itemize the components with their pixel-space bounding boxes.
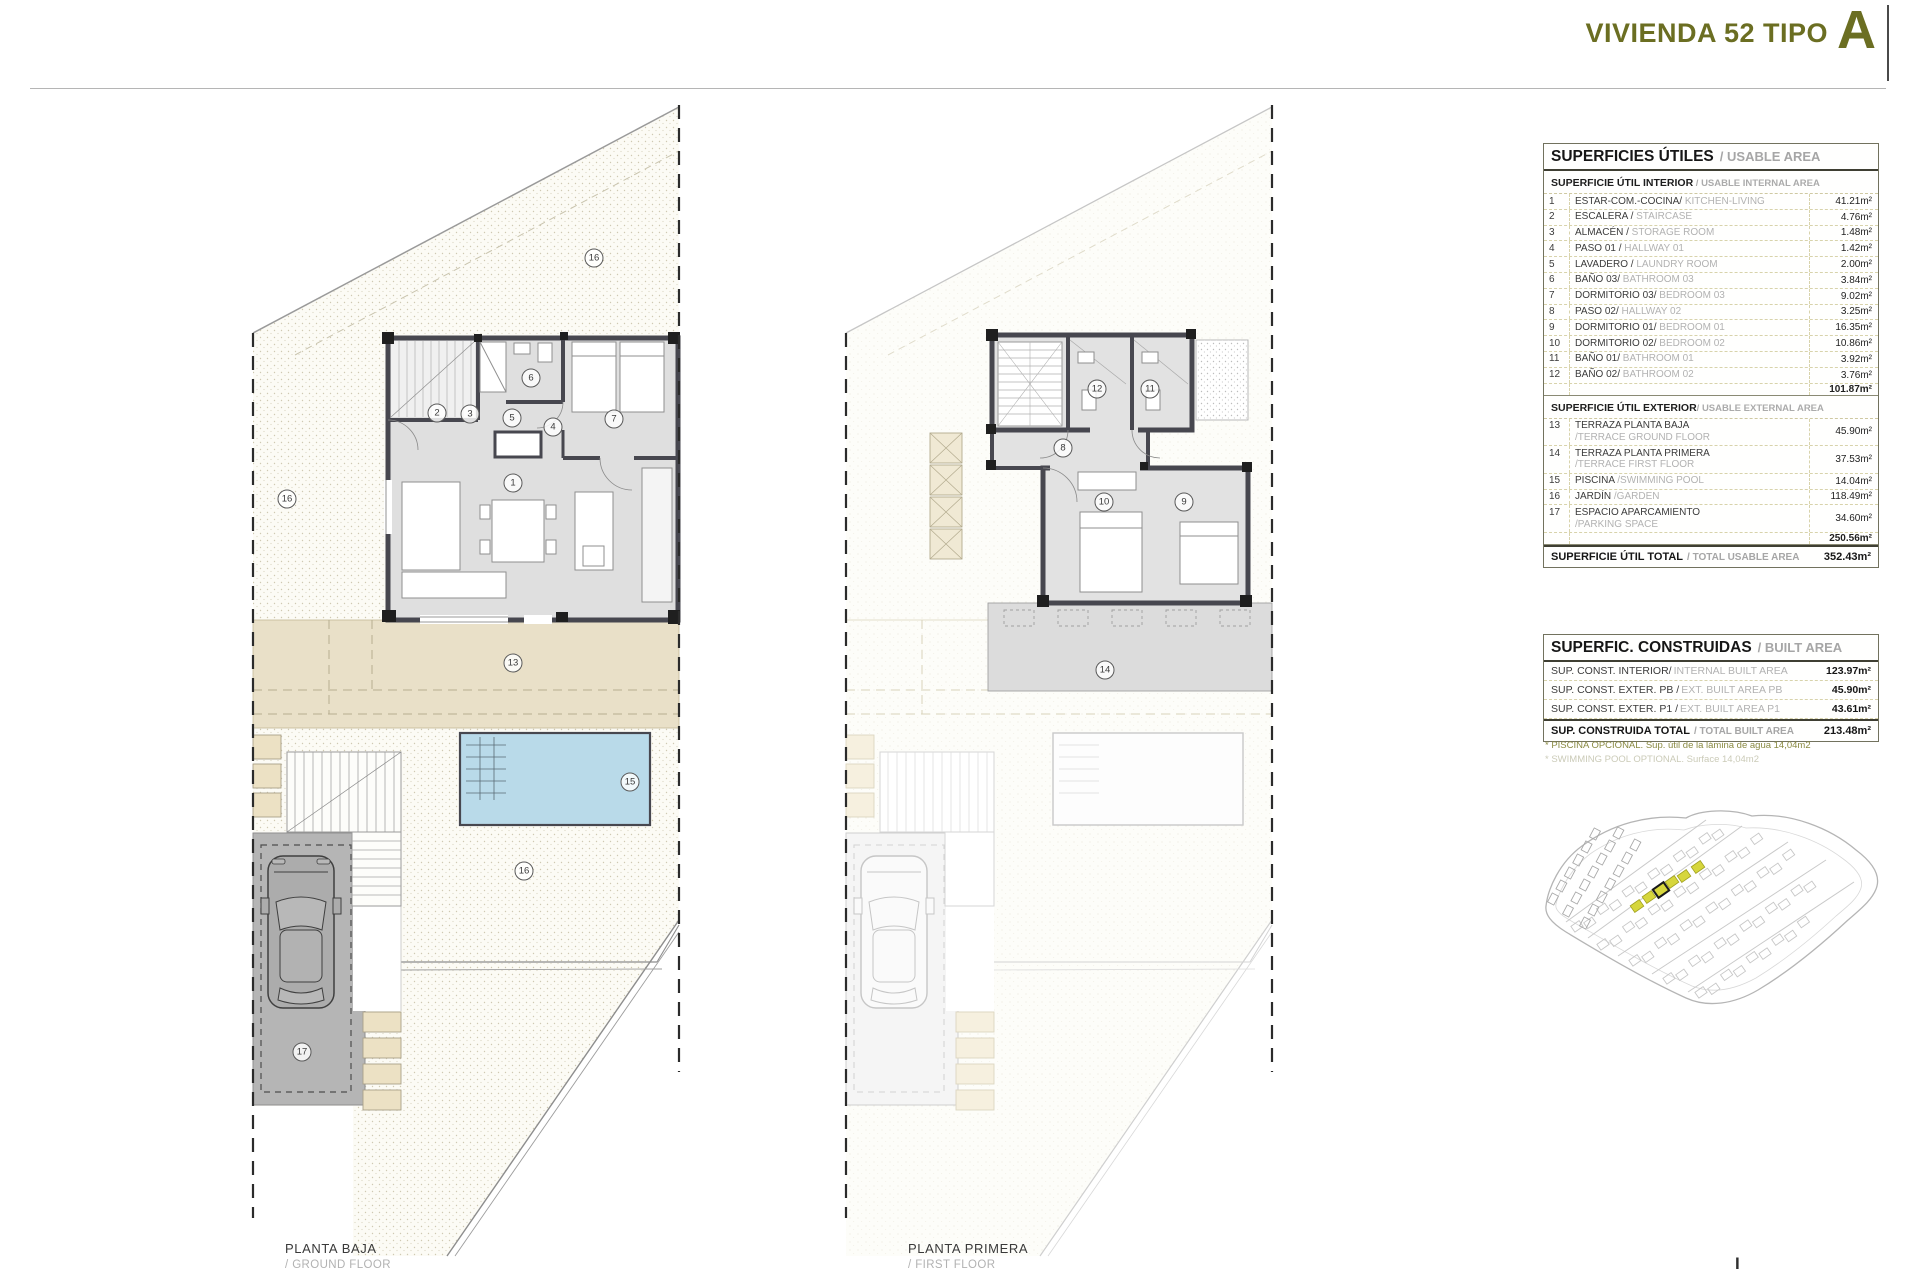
row-number: 6: [1544, 273, 1570, 288]
row-number: 11: [1544, 352, 1570, 367]
built-area-row: SUP. CONST. EXTER. PB / EXT. BUILT AREA …: [1544, 681, 1878, 700]
usable-area-row: 7 DORMITORIO 03/ BEDROOM 03 9.02m²: [1544, 289, 1878, 305]
pool-footnote-en: * SWIMMING POOL OPTIONAL. Surface 14,04m…: [1545, 754, 1759, 765]
plan-first-floor-drawing: [846, 105, 1272, 1256]
usable-area-row: 13 TERRAZA PLANTA BAJA/TERRACE GROUND FL…: [1544, 419, 1878, 447]
plan-sheet: VIVIENDA 52 TIPO A 161623564711315161712…: [0, 0, 1920, 1280]
row-name: BAÑO 02/ BATHROOM 02: [1570, 368, 1809, 383]
row-value: 3.25m²: [1809, 305, 1878, 320]
built-total-row: SUP. CONSTRUIDA TOTAL / TOTAL BUILT AREA…: [1544, 719, 1878, 741]
page-title: VIVIENDA 52 TIPO A: [1585, 8, 1876, 54]
usable-area-row: 12 BAÑO 02/ BATHROOM 02 3.76m²: [1544, 368, 1878, 384]
row-name: SUP. CONST. EXTER. P1 /: [1551, 703, 1678, 715]
plan-label-en: / GROUND FLOOR: [285, 1259, 391, 1271]
row-name: LAVADERO / LAUNDRY ROOM: [1570, 257, 1809, 272]
pool-footnote-es: * PISCINA OPCIONAL. Sup. útil de la lámi…: [1545, 740, 1811, 751]
row-value: 16.35m²: [1809, 320, 1878, 335]
row-name: PASO 01 / HALLWAY 01: [1570, 241, 1809, 256]
row-name: TERRAZA PLANTA BAJA/TERRACE GROUND FLOOR: [1570, 419, 1809, 446]
row-name: PISCINA /SWIMMING POOL: [1570, 474, 1809, 489]
row-number: 17: [1544, 505, 1570, 532]
usable-area-table: SUPERFICIES ÚTILES / USABLE AREA SUPERFI…: [1543, 143, 1879, 568]
built-area-row: SUP. CONST. EXTER. P1 / EXT. BUILT AREA …: [1544, 700, 1878, 719]
row-name: DORMITORIO 02/ BEDROOM 02: [1570, 336, 1809, 351]
row-name: SUP. CONST. EXTER. PB /: [1551, 684, 1679, 696]
row-name: DORMITORIO 01/ BEDROOM 01: [1570, 320, 1809, 335]
row-number: 14: [1544, 446, 1570, 473]
row-name: BAÑO 03/ BATHROOM 03: [1570, 273, 1809, 288]
title-type-letter: A: [1837, 8, 1876, 54]
row-value: 123.97m²: [1826, 665, 1871, 677]
row-number: 4: [1544, 241, 1570, 256]
row-value: 2.00m²: [1809, 257, 1878, 272]
row-value: 37.53m²: [1809, 446, 1878, 473]
usable-area-row: 14 TERRAZA PLANTA PRIMERA/TERRACE FIRST …: [1544, 446, 1878, 474]
usable-area-row: 4 PASO 01 / HALLWAY 01 1.42m²: [1544, 241, 1878, 257]
row-value: 118.49m²: [1809, 490, 1878, 505]
row-name: ALMACÉN / STORAGE ROOM: [1570, 226, 1809, 241]
usable-total-row: SUPERFICIE ÚTIL TOTAL / TOTAL USABLE ARE…: [1544, 545, 1878, 567]
row-name: ESTAR-COM.-COCINA/ KITCHEN-LIVING: [1570, 194, 1809, 209]
row-value: 1.48m²: [1809, 226, 1878, 241]
car-icon: [261, 856, 341, 1008]
plan-label-es: PLANTA PRIMERA: [908, 1241, 1028, 1256]
usable-area-row: 3 ALMACÉN / STORAGE ROOM 1.48m²: [1544, 226, 1878, 242]
page-edge-mark: [1887, 5, 1889, 81]
row-number: 16: [1544, 490, 1570, 505]
usable-area-row: 15 PISCINA /SWIMMING POOL 14.04m²: [1544, 474, 1878, 490]
usable-area-row: 1 ESTAR-COM.-COCINA/ KITCHEN-LIVING 41.2…: [1544, 194, 1878, 210]
row-value: 10.86m²: [1809, 336, 1878, 351]
page-mark: I: [1735, 1254, 1740, 1274]
row-number: 8: [1544, 305, 1570, 320]
row-value: 3.84m²: [1809, 273, 1878, 288]
row-number: 9: [1544, 320, 1570, 335]
row-value: 3.92m²: [1809, 352, 1878, 367]
usable-area-row: 9 DORMITORIO 01/ BEDROOM 01 16.35m²: [1544, 320, 1878, 336]
usable-exterior-rows: 13 TERRAZA PLANTA BAJA/TERRACE GROUND FL…: [1544, 419, 1878, 533]
row-name: BAÑO 01/ BATHROOM 01: [1570, 352, 1809, 367]
row-name: PASO 02/ HALLWAY 02: [1570, 305, 1809, 320]
header-rule: [30, 88, 1886, 89]
row-number: 5: [1544, 257, 1570, 272]
row-value: 45.90m²: [1809, 419, 1878, 446]
row-name: TERRAZA PLANTA PRIMERA/TERRACE FIRST FLO…: [1570, 446, 1809, 473]
row-value: 1.42m²: [1809, 241, 1878, 256]
row-value: 41.21m²: [1809, 194, 1878, 209]
car-icon-ghost: [854, 856, 934, 1008]
row-value: 45.90m²: [1832, 684, 1871, 696]
plan-label-ground-floor: PLANTA BAJA / GROUND FLOOR: [285, 1241, 391, 1271]
plan-label-first-floor: PLANTA PRIMERA / FIRST FLOOR: [908, 1241, 1028, 1271]
row-number: 13: [1544, 419, 1570, 446]
plan-label-en: / FIRST FLOOR: [908, 1259, 1028, 1271]
built-rows: SUP. CONST. INTERIOR/ INTERNAL BUILT ARE…: [1544, 662, 1878, 719]
row-value: 43.61m²: [1832, 703, 1871, 715]
row-name: JARDÍN /GARDEN: [1570, 490, 1809, 505]
row-name: DORMITORIO 03/ BEDROOM 03: [1570, 289, 1809, 304]
row-value: 4.76m²: [1809, 210, 1878, 225]
usable-interior-header: SUPERFICIE ÚTIL INTERIOR / USABLE INTERN…: [1544, 171, 1878, 194]
usable-area-row: 5 LAVADERO / LAUNDRY ROOM 2.00m²: [1544, 257, 1878, 273]
row-number: 3: [1544, 226, 1570, 241]
interior-subtotal-row: 101.87m²: [1544, 384, 1878, 396]
plan-label-es: PLANTA BAJA: [285, 1241, 391, 1256]
usable-area-row: 2 ESCALERA / STAIRCASE 4.76m²: [1544, 210, 1878, 226]
row-number: 7: [1544, 289, 1570, 304]
row-value: 3.76m²: [1809, 368, 1878, 383]
usable-exterior-header: SUPERFICIE ÚTIL EXTERIOR/ USABLE EXTERNA…: [1544, 396, 1878, 419]
plan-ground-floor-drawing: [253, 105, 680, 1256]
usable-area-row: 11 BAÑO 01/ BATHROOM 01 3.92m²: [1544, 352, 1878, 368]
row-number: 1: [1544, 194, 1570, 209]
built-area-table: SUPERFIC. CONSTRUIDAS / BUILT AREA SUP. …: [1543, 634, 1879, 742]
usable-area-row: 17 ESPACIO APARCAMIENTO/PARKING SPACE 34…: [1544, 505, 1878, 533]
built-table-title: SUPERFIC. CONSTRUIDAS / BUILT AREA: [1544, 635, 1878, 662]
exterior-subtotal-row: 250.56m²: [1544, 533, 1878, 545]
row-value: 14.04m²: [1809, 474, 1878, 489]
usable-area-row: 16 JARDÍN /GARDEN 118.49m²: [1544, 490, 1878, 506]
row-value: 34.60m²: [1809, 505, 1878, 532]
row-name: ESCALERA / STAIRCASE: [1570, 210, 1809, 225]
usable-table-title: SUPERFICIES ÚTILES / USABLE AREA: [1544, 144, 1878, 171]
usable-area-row: 10 DORMITORIO 02/ BEDROOM 02 10.86m²: [1544, 336, 1878, 352]
title-text: VIVIENDA 52 TIPO: [1585, 20, 1828, 54]
usable-area-row: 6 BAÑO 03/ BATHROOM 03 3.84m²: [1544, 273, 1878, 289]
row-value: 9.02m²: [1809, 289, 1878, 304]
row-name: SUP. CONST. INTERIOR/: [1551, 665, 1672, 677]
usable-interior-rows: 1 ESTAR-COM.-COCINA/ KITCHEN-LIVING 41.2…: [1544, 194, 1878, 384]
row-number: 2: [1544, 210, 1570, 225]
site-plan: [1546, 811, 1878, 1004]
built-area-row: SUP. CONST. INTERIOR/ INTERNAL BUILT ARE…: [1544, 662, 1878, 681]
row-number: 15: [1544, 474, 1570, 489]
row-number: 12: [1544, 368, 1570, 383]
row-number: 10: [1544, 336, 1570, 351]
usable-area-row: 8 PASO 02/ HALLWAY 02 3.25m²: [1544, 305, 1878, 321]
row-name: ESPACIO APARCAMIENTO/PARKING SPACE: [1570, 505, 1809, 532]
